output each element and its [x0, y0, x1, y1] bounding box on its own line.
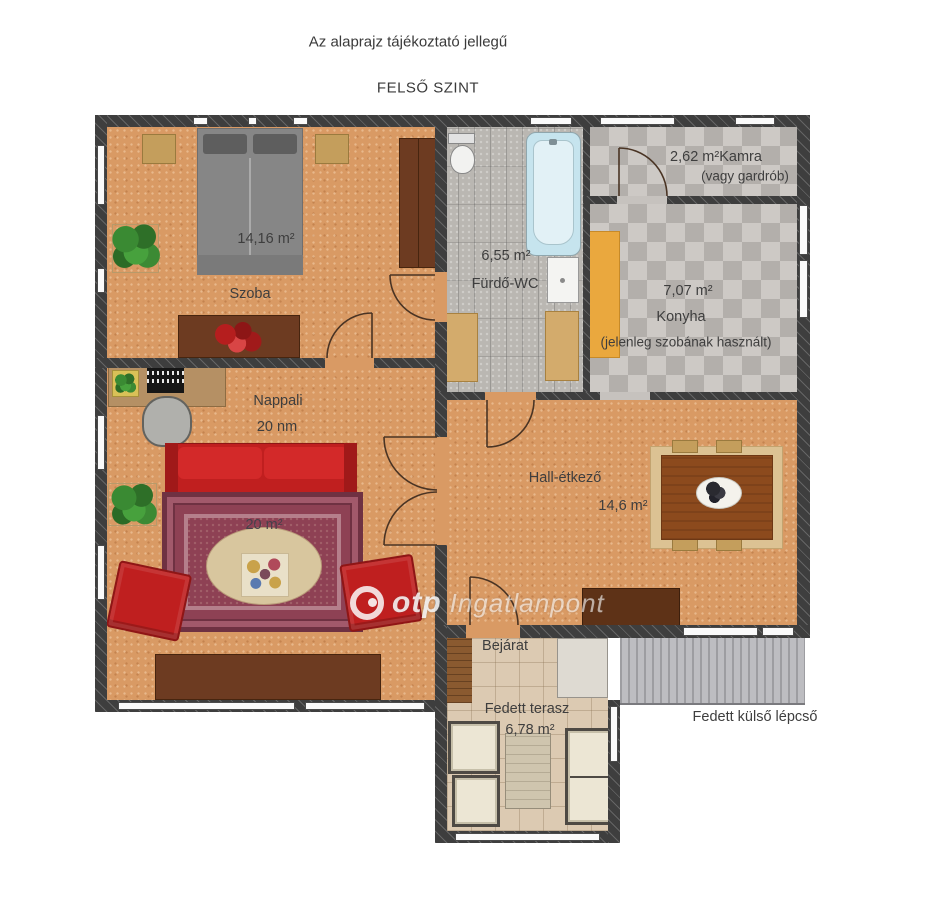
kamra-name-label: Kamra	[719, 149, 762, 165]
nappali-name-label: Nappali	[253, 393, 302, 409]
watermark-brand: otp	[392, 586, 442, 620]
szoba-name-label: Szoba	[229, 286, 270, 302]
floorplan-page: { "header": { "disclaimer": "Az alaprajz…	[0, 0, 939, 900]
kamra-area-label: 2,62 m²	[670, 149, 719, 165]
door-szoba-nappali	[327, 313, 372, 358]
door-bathroom	[487, 400, 534, 447]
rug-area-label: 20 m²	[245, 517, 282, 533]
hall-name-label: Hall-étkező	[529, 470, 602, 486]
konyha-name-label: Konyha	[656, 309, 705, 325]
hall-area-label: 14,6 m²	[598, 498, 647, 514]
kamra-label: 2,62 m²Kamra	[670, 149, 762, 165]
otp-logo-icon	[350, 586, 384, 620]
door-arcs	[0, 0, 939, 900]
watermark-name: Ingatlanpont	[450, 588, 605, 619]
door-szoba-bath	[390, 275, 435, 320]
konyha-area-label: 7,07 m²	[663, 283, 712, 299]
nappali-area-label: 20 nm	[257, 419, 297, 435]
otp-logo-dot	[368, 598, 377, 607]
furdo-area-label: 6,55 m²	[481, 248, 530, 264]
terasz-name-label: Fedett terasz	[485, 701, 570, 717]
bejarat-label: Bejárat	[482, 638, 528, 654]
lepcso-label: Fedett külső lépcső	[693, 709, 818, 725]
door-french-top	[384, 437, 437, 490]
furdo-name-label: Fürdő-WC	[472, 276, 539, 292]
kamra-note-label: (vagy gardrób)	[701, 169, 789, 184]
door-french-bottom	[384, 492, 437, 545]
door-kamra	[619, 148, 667, 196]
terasz-area-label: 6,78 m²	[505, 722, 554, 738]
szoba-area-label: 14,16 m²	[237, 231, 294, 247]
konyha-note-label: (jelenleg szobának használt)	[600, 335, 771, 350]
watermark: otp Ingatlanpont	[350, 585, 605, 621]
